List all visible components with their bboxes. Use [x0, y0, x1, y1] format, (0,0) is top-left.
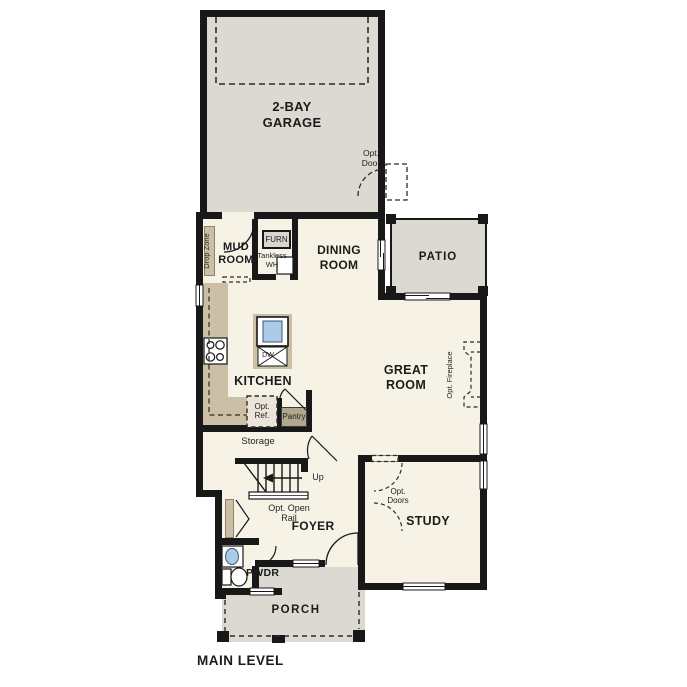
foyer-closet-shelf — [225, 499, 234, 538]
tankless-wh-label: Tankless WH — [252, 252, 292, 269]
dishwasher-label: DW — [259, 352, 277, 360]
stair-wall-stub — [301, 458, 308, 472]
garage-wall-right — [378, 10, 385, 219]
dining-wall-right — [378, 219, 385, 300]
optional-door-label: Opt. Door — [354, 149, 388, 169]
up-label: Up — [308, 472, 328, 482]
patio-label: PATIO — [408, 250, 468, 264]
optional-fireplace-label: Opt. Fireplace — [446, 325, 458, 425]
pantry-label: Pantry — [279, 412, 309, 421]
furn-closet-wall-bottom — [252, 274, 298, 280]
plan-title: MAIN LEVEL — [197, 653, 327, 669]
porch-post — [215, 589, 226, 599]
patio-post — [386, 214, 396, 224]
stair-wall-top — [235, 458, 308, 464]
garage-label: 2-BAY GARAGE — [252, 99, 332, 131]
porch-post — [353, 630, 365, 642]
patio-post — [478, 214, 488, 224]
dining-room-label: DINING ROOM — [311, 243, 367, 272]
exterior-wall-right — [480, 293, 487, 590]
garage-wall-left — [200, 10, 207, 219]
floor-plan: 2-BAY GARAGE Opt. Door Drop Zone MUD ROO… — [0, 0, 687, 687]
front-door-opening — [325, 560, 358, 567]
closet-wall-bottom — [222, 538, 259, 545]
exterior-wall-left-lower — [215, 490, 222, 595]
study-wall-top — [365, 455, 487, 462]
porch-post — [217, 631, 229, 642]
mud-door-opening — [222, 212, 254, 219]
optional-doors-label: Opt. Doors — [381, 487, 415, 505]
study-wall-bottom — [365, 583, 487, 590]
furn-closet-opening — [276, 274, 290, 280]
pwdr-label: PWDR — [246, 567, 290, 580]
great-room-label: GREAT ROOM — [378, 363, 434, 394]
garage-wall-top — [200, 10, 385, 17]
kitchen-island — [253, 314, 292, 369]
study-label: STUDY — [398, 514, 458, 529]
porch-post — [272, 635, 285, 643]
furnace-label: FURN — [263, 235, 290, 244]
study-wall-left — [358, 455, 365, 590]
storage-label: Storage — [228, 437, 288, 448]
optional-fridge-label: Opt. Ref. — [248, 402, 276, 420]
greatroom-wall-top — [378, 293, 487, 300]
kitchen-label: KITCHEN — [223, 374, 303, 389]
furn-closet-wall-right — [292, 219, 298, 280]
porch-label: PORCH — [266, 603, 326, 617]
foyer-label: FOYER — [283, 519, 343, 534]
